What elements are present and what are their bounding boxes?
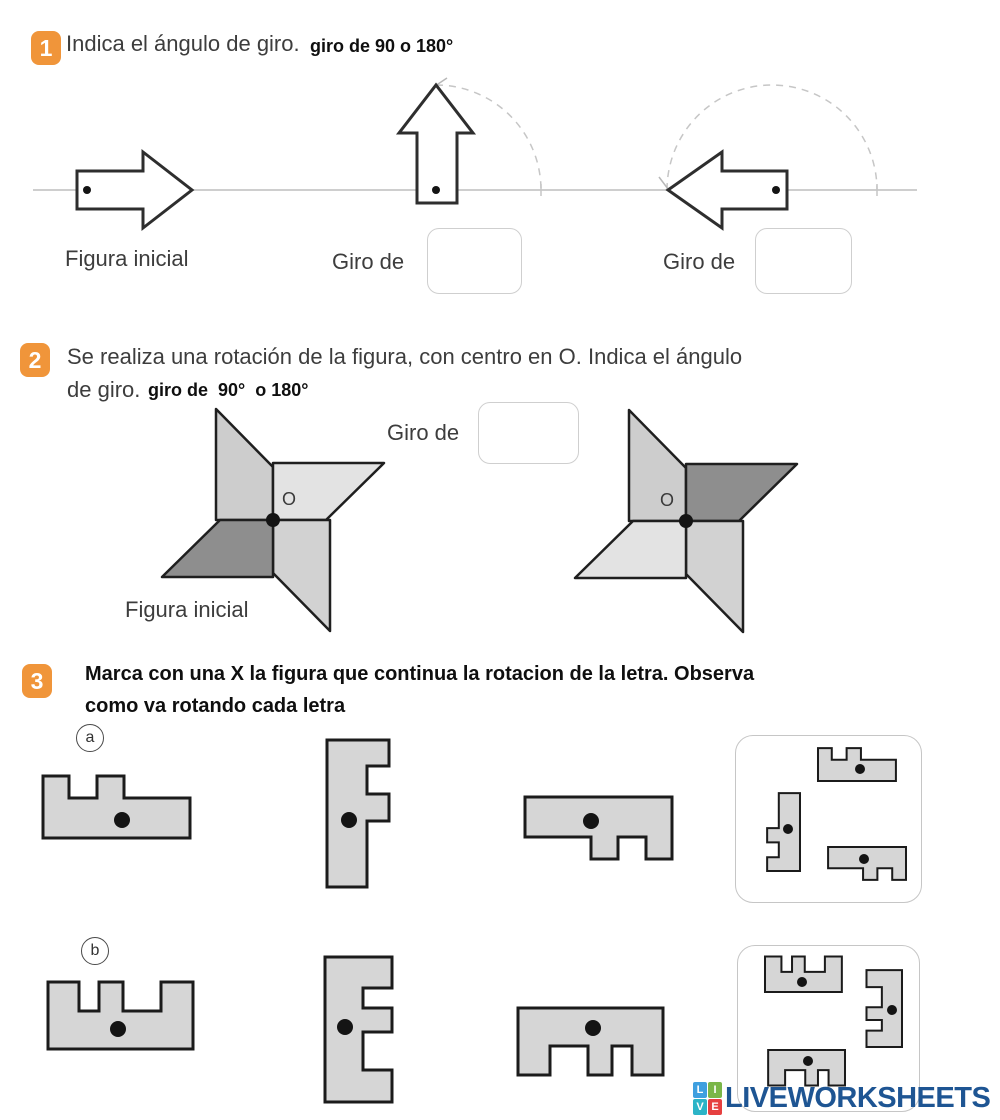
option-b-1-arms-up[interactable] (765, 956, 842, 992)
exercise3-title-line2: como va rotando cada letra (85, 695, 345, 718)
letter-e-step1-arms-up (48, 982, 193, 1049)
pinwheel1-blade-bottomright (273, 520, 330, 631)
logo-letter: E (711, 1101, 718, 1113)
rotation-dot (855, 764, 865, 774)
exercise1-answer-box-1[interactable] (427, 228, 522, 294)
exercise2-title-line1: Se realiza una rotación de la figura, co… (67, 344, 742, 370)
exercise2-title-line2: de giro. (67, 377, 140, 403)
arrow-up-rotated-90 (399, 85, 473, 203)
arrow-left-rotated-180 (668, 152, 787, 228)
item-b-letter: b (91, 942, 100, 960)
rotation-dot (585, 1020, 601, 1036)
exercise1-title: Indica el ángulo de giro. (66, 31, 300, 57)
exercise1-giro-label-1: Giro de (332, 249, 404, 275)
logo-squares: L I V E (693, 1082, 722, 1115)
letter-f-step2-upright (327, 740, 389, 887)
liveworksheets-logo: L I V E LIVEWORKSHEETS (693, 1082, 990, 1115)
exercise1-number-badge: 1 (31, 31, 61, 65)
rotation-dot (110, 1021, 126, 1037)
pinwheel-rotated (575, 410, 797, 632)
option-b-2-arms-left[interactable] (866, 970, 902, 1047)
exercise1-number: 1 (40, 35, 53, 62)
exercise1-figures (33, 78, 917, 228)
pinwheel2-blade-topright (686, 464, 797, 521)
option-a-3-arms-down[interactable] (828, 847, 906, 880)
rotation-dot (859, 854, 869, 864)
logo-square-l: L (693, 1082, 707, 1098)
worksheet-page: 1 Indica el ángulo de giro. giro de 90 o… (0, 0, 1000, 1120)
pinwheel2-blade-bottomleft (575, 521, 686, 578)
exercise1-giro-label-2: Giro de (663, 249, 735, 275)
option-b-3-arms-down[interactable] (768, 1050, 845, 1086)
exercise2-number: 2 (29, 347, 42, 374)
rotation-dot (887, 1005, 897, 1015)
logo-letter: L (697, 1084, 704, 1096)
logo-letter: V (696, 1101, 703, 1113)
logo-text: LIVEWORKSHEETS (725, 1082, 990, 1115)
exercise2-giro-label: Giro de (387, 420, 459, 446)
item-a-letter: a (86, 729, 95, 747)
pinwheel1-blade-bottomleft (162, 520, 273, 577)
rotation-dot (803, 1056, 813, 1066)
exercise1-figure-label: Figura inicial (65, 246, 189, 272)
letter-e-step2-upright (325, 957, 392, 1102)
logo-square-i: I (708, 1082, 722, 1098)
option-a-1-arms-up[interactable] (818, 748, 896, 781)
pinwheel2-center-label: O (660, 490, 674, 511)
arrow-right-center-dot (83, 186, 91, 194)
pinwheel2-center-dot (679, 514, 693, 528)
item-a-marker: a (76, 724, 104, 752)
worksheet-graphics (0, 0, 1000, 1120)
exercise3-number-badge: 3 (22, 664, 52, 698)
rotation-dot (337, 1019, 353, 1035)
arrow-left-center-dot (772, 186, 780, 194)
pinwheel2-blade-bottomright (686, 521, 743, 632)
letter-e-step3-arms-down (518, 1008, 663, 1075)
exercise1-answer-box-2[interactable] (755, 228, 852, 294)
exercise2-number-badge: 2 (20, 343, 50, 377)
logo-square-v: V (693, 1099, 707, 1115)
logo-square-e: E (708, 1099, 722, 1115)
rotation-dot (783, 824, 793, 834)
pinwheel1-center-dot (266, 513, 280, 527)
arrow-up-center-dot (432, 186, 440, 194)
rotation-dot (341, 812, 357, 828)
rotation-dot (114, 812, 130, 828)
rotation-dot (797, 977, 807, 987)
exercise2-figure-label: Figura inicial (125, 597, 249, 623)
logo-letter: I (713, 1084, 716, 1096)
exercise2-answer-box[interactable] (478, 402, 579, 464)
item-b-marker: b (81, 937, 109, 965)
letter-f-step3-arms-down (525, 797, 672, 859)
exercise1-subtitle: giro de 90 o 180° (310, 36, 453, 57)
pinwheel1-blade-topleft (216, 409, 273, 520)
letter-f-step1-arms-up (43, 776, 190, 838)
option-a-2-arms-left[interactable] (767, 793, 800, 871)
pinwheel2-blade-topleft (629, 410, 686, 521)
rotation-dot (583, 813, 599, 829)
exercise3-number: 3 (31, 668, 44, 695)
arrow-right-initial (77, 152, 192, 228)
pinwheel1-center-label: O (282, 489, 296, 510)
exercise3-title-line1: Marca con una X la figura que continua l… (85, 663, 754, 686)
exercise2-subtitle: giro de 90° o 180° (148, 380, 308, 401)
